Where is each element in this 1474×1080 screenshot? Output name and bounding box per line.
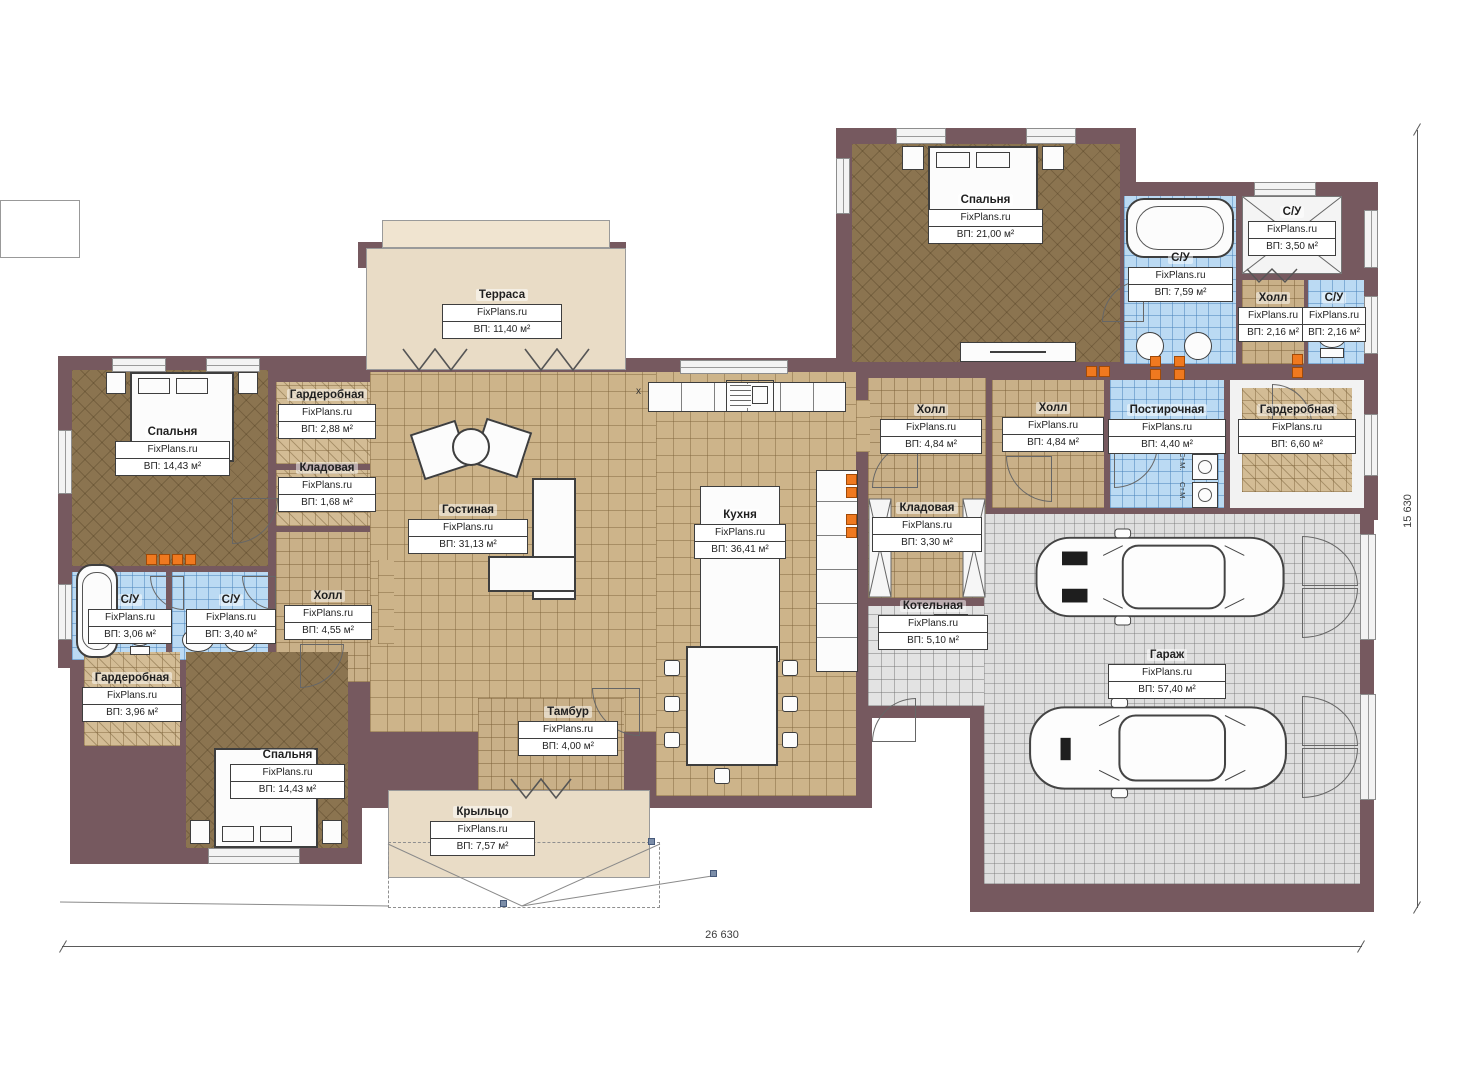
dimension-width-label: 26 630 [662, 929, 782, 941]
radiator-icon [846, 514, 857, 538]
pillow-icon [138, 378, 170, 394]
room-label-tambour: Тамбур FixPlans.ruВП: 4,00 м² [518, 702, 618, 756]
pillow-icon [936, 152, 970, 168]
room-name: С/У [1322, 292, 1347, 304]
room-name: Крыльцо [453, 806, 511, 818]
room-label-wardrobe-right: Гардеробная FixPlans.ruВП: 6,60 м² [1238, 400, 1356, 454]
room-area: ВП: 4,84 м² [881, 436, 981, 453]
room-label-bath-left2: С/У FixPlans.ruВП: 3,40 м² [186, 590, 276, 644]
room-area: ВП: 3,30 м² [873, 534, 981, 551]
window [1364, 414, 1378, 476]
room-area: ВП: 4,40 м² [1109, 436, 1225, 453]
window [836, 158, 850, 214]
room-area: ВП: 14,43 м² [231, 781, 344, 798]
car-icon [1026, 690, 1290, 806]
terrace-roof-edge [382, 220, 610, 248]
silhouette-cut [0, 172, 132, 200]
brand-watermark: FixPlans.ru [431, 822, 534, 838]
bathtub-basin [1136, 206, 1224, 250]
brand-watermark: FixPlans.ru [873, 518, 981, 534]
folding-door-icon [1246, 268, 1298, 284]
room-name: С/У [118, 594, 143, 606]
brand-watermark: FixPlans.ru [1109, 420, 1225, 436]
room-label-living: Гостиная FixPlans.ruВП: 31,13 м² [408, 500, 528, 554]
window [1364, 210, 1378, 268]
roof-node [500, 900, 507, 907]
brand-watermark: FixPlans.ru [409, 520, 527, 536]
room-label-bath-master: С/У FixPlans.ruВП: 7,59 м² [1128, 248, 1233, 302]
radiator-icon [846, 474, 857, 498]
chair-icon [664, 660, 680, 676]
brand-watermark: FixPlans.ru [1129, 268, 1232, 284]
garage-door-opening [1360, 694, 1376, 800]
room-label-hall-garage: Холл FixPlans.ruВП: 4,84 м² [1002, 398, 1104, 452]
brand-watermark: FixPlans.ru [116, 442, 229, 458]
room-label-wc-topright: С/У FixPlans.ruВП: 2,16 м² [1302, 288, 1366, 342]
opening-living-hall [378, 560, 394, 644]
room-name: С/У [219, 594, 244, 606]
room-label-porch: Крыльцо FixPlans.ruВП: 7,57 м² [430, 802, 535, 856]
washer-mark: Ст.М. [1178, 452, 1187, 470]
brand-watermark: FixPlans.ru [83, 688, 181, 704]
brand-watermark: FixPlans.ru [929, 210, 1042, 226]
window [208, 848, 300, 864]
brand-watermark: FixPlans.ru [879, 616, 987, 632]
room-area: ВП: 3,40 м² [187, 626, 275, 643]
window [1026, 128, 1076, 144]
radiator-icon [146, 554, 170, 565]
window [680, 360, 788, 374]
room-name: Холл [1256, 292, 1291, 304]
room-name: Гостиная [439, 504, 497, 516]
window [1364, 296, 1378, 354]
room-label-bedroom-left: Спальня FixPlans.ruВП: 14,43 м² [115, 422, 230, 476]
kitchen-appliance-column [816, 470, 858, 672]
room-area: ВП: 36,41 м² [695, 541, 785, 558]
pillow-icon [222, 826, 254, 842]
room-label-hall-left: Холл FixPlans.ruВП: 4,55 м² [284, 586, 372, 640]
brand-watermark: FixPlans.ru [1109, 665, 1225, 681]
dimension-line-right [1417, 130, 1418, 908]
sink-icon [1184, 332, 1212, 360]
brand-watermark: FixPlans.ru [231, 765, 344, 781]
room-area: ВП: 2,16 м² [1239, 324, 1307, 341]
room-label-terrace: Терраса FixPlans.ruВП: 11,40 м² [442, 285, 562, 339]
room-label-pantry-left: Кладовая FixPlans.ruВП: 1,68 м² [278, 458, 376, 512]
room-label-pantry-kitchen: Кладовая FixPlans.ruВП: 3,30 м² [872, 498, 982, 552]
pillow-icon [176, 378, 208, 394]
room-name: Тамбур [544, 706, 592, 718]
opening-kitchen-hall [856, 400, 870, 452]
brand-watermark: FixPlans.ru [1239, 420, 1355, 436]
coffee-table-icon [452, 428, 490, 466]
nightstand-icon [190, 820, 210, 844]
room-area: ВП: 57,40 м² [1109, 681, 1225, 698]
room-label-bedroom-topright: Спальня FixPlans.ruВП: 21,00 м² [928, 190, 1043, 244]
chair-icon [714, 768, 730, 784]
room-label-bath-left1: С/У FixPlans.ruВП: 3,06 м² [88, 590, 172, 644]
window [896, 128, 946, 144]
room-name: Терраса [476, 289, 528, 301]
room-name: Гардеробная [92, 672, 172, 684]
folding-door-icon [510, 778, 572, 800]
toilet-tank [130, 646, 150, 655]
room-label-garage: Гараж FixPlans.ruВП: 57,40 м² [1108, 645, 1226, 699]
brand-watermark: FixPlans.ru [1239, 308, 1307, 324]
room-name: Холл [311, 590, 346, 602]
chair-icon [782, 660, 798, 676]
room-name: Кухня [720, 509, 760, 521]
pillow-icon [260, 826, 292, 842]
room-label-boiler: Котельная FixPlans.ruВП: 5,10 м² [878, 596, 988, 650]
brand-watermark: FixPlans.ru [519, 722, 617, 738]
brand-watermark: FixPlans.ru [187, 610, 275, 626]
room-name: Постирочная [1127, 404, 1208, 416]
room-area: ВП: 4,84 м² [1003, 434, 1103, 451]
room-label-kitchen: Кухня FixPlans.ruВП: 36,41 м² [694, 505, 786, 559]
room-area: ВП: 2,88 м² [279, 421, 375, 438]
dimension-line-bottom [62, 946, 1362, 947]
brand-watermark: FixPlans.ru [695, 525, 785, 541]
dining-table-icon [686, 646, 778, 766]
room-area: ВП: 7,57 м² [431, 838, 534, 855]
radiator-icon [1150, 356, 1161, 380]
window [112, 358, 166, 372]
silhouette-cut [0, 110, 112, 172]
room-area: ВП: 5,10 м² [879, 632, 987, 649]
room-area: ВП: 3,50 м² [1249, 238, 1335, 255]
nightstand-icon [322, 820, 342, 844]
room-name: Кладовая [896, 502, 957, 514]
roof-node [710, 870, 717, 877]
pillow-icon [976, 152, 1010, 168]
dimension-height-label: 15 630 [1402, 471, 1414, 551]
room-area: ВП: 21,00 м² [929, 226, 1042, 243]
room-label-bedroom-botleft: Спальня FixPlans.ruВП: 14,43 м² [230, 745, 345, 799]
room-area: ВП: 3,06 м² [89, 626, 171, 643]
washing-machine-drum [1198, 460, 1212, 474]
washing-machine-drum [1198, 488, 1212, 502]
folding-door-icon [524, 348, 590, 372]
room-label-bath-topright: С/У FixPlans.ruВП: 3,50 м² [1248, 202, 1336, 256]
washer-mark: Ст.М. [1178, 482, 1187, 500]
room-label-laundry: Постирочная FixPlans.ruВП: 4,40 м² [1108, 400, 1226, 454]
room-area: ВП: 2,16 м² [1303, 324, 1365, 341]
room-label-wardrobe-topleft: Гардеробная FixPlans.ruВП: 2,88 м² [278, 385, 376, 439]
brand-watermark: FixPlans.ru [881, 420, 981, 436]
counter-mark: x [636, 386, 641, 397]
room-name: Холл [914, 404, 949, 416]
nightstand-icon [238, 372, 258, 394]
brand-watermark: FixPlans.ru [443, 305, 561, 321]
roof-node [648, 838, 655, 845]
room-name: Спальня [958, 194, 1014, 206]
room-name: Кладовая [296, 462, 357, 474]
window [206, 358, 260, 372]
sofa-icon [488, 556, 576, 592]
radiator-icon [1292, 354, 1303, 378]
room-area: ВП: 1,68 м² [279, 494, 375, 511]
brand-watermark: FixPlans.ru [1249, 222, 1335, 238]
garage-door-opening [1360, 534, 1376, 640]
room-area: ВП: 6,60 м² [1239, 436, 1355, 453]
room-label-hall-topright: Холл FixPlans.ruВП: 2,16 м² [1238, 288, 1308, 342]
room-name: Холл [1036, 402, 1071, 414]
brand-watermark: FixPlans.ru [279, 478, 375, 494]
roof-lines [60, 838, 720, 918]
folding-door-icon [402, 348, 468, 372]
nightstand-icon [1042, 146, 1064, 170]
room-area: ВП: 4,55 м² [285, 622, 371, 639]
room-name: Гараж [1147, 649, 1187, 661]
window [58, 584, 72, 640]
brand-watermark: FixPlans.ru [279, 405, 375, 421]
room-area: ВП: 4,00 м² [519, 738, 617, 755]
room-name: С/У [1168, 252, 1193, 264]
room-name: Спальня [260, 749, 316, 761]
room-name: Котельная [900, 600, 966, 612]
chair-icon [664, 732, 680, 748]
room-area: ВП: 7,59 м² [1129, 284, 1232, 301]
nightstand-icon [106, 372, 126, 394]
radiator-icon [1086, 366, 1110, 377]
window [1254, 182, 1316, 196]
floor-plan: Ст.М. Ст.М. [0, 0, 1474, 1080]
brand-watermark: FixPlans.ru [285, 606, 371, 622]
radiator-icon [172, 554, 196, 565]
chair-icon [664, 696, 680, 712]
toilet-tank [1320, 348, 1344, 358]
room-label-hall-kitchen: Холл FixPlans.ruВП: 4,84 м² [880, 400, 982, 454]
room-name: Гардеробная [1257, 404, 1337, 416]
laundry-corner [0, 200, 80, 258]
radiator-icon [1174, 356, 1185, 380]
brand-watermark: FixPlans.ru [89, 610, 171, 626]
room-area: ВП: 31,13 м² [409, 536, 527, 553]
room-name: Спальня [145, 426, 201, 438]
room-area: ВП: 11,40 м² [443, 321, 561, 338]
room-area: ВП: 3,96 м² [83, 704, 181, 721]
chair-icon [782, 732, 798, 748]
room-name: Гардеробная [287, 389, 367, 401]
window [58, 430, 72, 494]
room-area: ВП: 14,43 м² [116, 458, 229, 475]
brand-watermark: FixPlans.ru [1003, 418, 1103, 434]
car-icon [1032, 528, 1288, 626]
chair-icon [782, 696, 798, 712]
room-label-wardrobe-botleft: Гардеробная FixPlans.ruВП: 3,96 м² [82, 668, 182, 722]
sink-icon [752, 386, 768, 404]
brand-watermark: FixPlans.ru [1303, 308, 1365, 324]
room-name: С/У [1280, 206, 1305, 218]
nightstand-icon [902, 146, 924, 170]
silhouette-cut [0, 0, 124, 110]
